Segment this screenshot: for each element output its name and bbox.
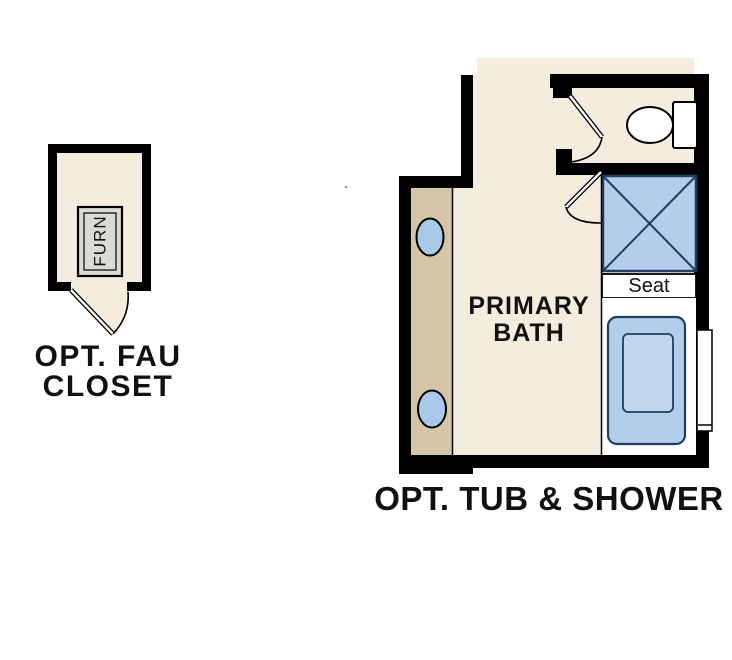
closet-door-opening [71,282,127,291]
fau-closet: FURN [48,144,151,334]
room-label-line2: BATH [493,319,565,347]
primary-bath: Seat PRIMARY BATH [399,58,712,474]
toilet-bowl [627,107,673,143]
toilet [627,102,697,148]
plan-caption: OPT. TUB & SHOWER [374,480,724,517]
bathtub-basin [623,334,673,412]
closet-caption-line1: OPT. FAU [34,340,181,373]
toilet-tank [673,102,697,148]
shower [603,176,696,271]
wc-wall-bottom [556,163,696,175]
bedroom-floor-beyond [477,58,694,75]
closet-caption-line2: CLOSET [43,370,174,403]
furnace-label: FURN [91,215,110,266]
wc-wall-stub-bottom [556,149,572,163]
wall-bottom-jog [399,468,473,474]
window-frame [697,330,712,431]
room-label-line1: PRIMARY [468,292,589,320]
wall-top [550,74,709,88]
floor-plan-canvas: FURN OPT. FAU CLOSET [0,0,732,660]
wall-bottom [399,455,709,468]
stray-dot [345,186,348,189]
sink-oval-top [417,219,444,256]
window-by-tub [697,330,712,431]
seat-label: Seat [628,275,670,297]
bath-entry-opening [473,75,553,88]
wc-wall-stub-top [553,88,572,98]
wall-left-upper [461,75,473,188]
sink-oval-bottom [418,391,446,428]
wall-left [399,176,411,468]
